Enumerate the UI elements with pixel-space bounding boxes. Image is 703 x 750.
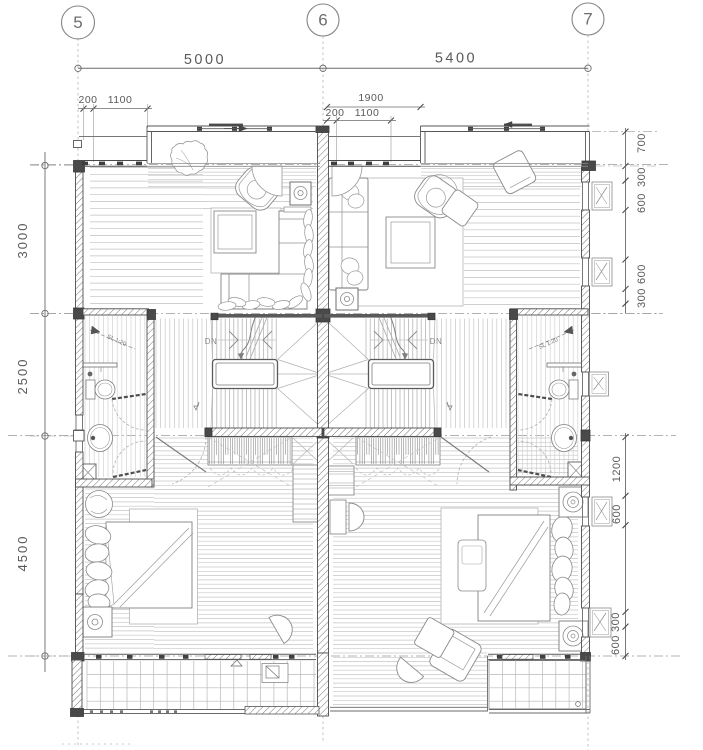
svg-text:300: 300 bbox=[636, 288, 648, 308]
svg-text:DN: DN bbox=[205, 337, 218, 346]
svg-text:1200: 1200 bbox=[611, 456, 623, 482]
svg-text:600: 600 bbox=[611, 504, 623, 524]
svg-text:7: 7 bbox=[583, 10, 592, 29]
svg-text:6: 6 bbox=[318, 11, 327, 30]
svg-text:300: 300 bbox=[610, 612, 622, 632]
svg-text:700: 700 bbox=[636, 133, 648, 153]
svg-text:600: 600 bbox=[636, 264, 648, 284]
svg-text:5400: 5400 bbox=[435, 51, 477, 67]
svg-text:5000: 5000 bbox=[184, 52, 226, 68]
svg-text:3000: 3000 bbox=[15, 222, 30, 259]
svg-text:1100: 1100 bbox=[355, 107, 380, 119]
svg-text:DN: DN bbox=[430, 337, 443, 346]
svg-text:4500: 4500 bbox=[15, 535, 30, 572]
svg-text:5: 5 bbox=[73, 13, 82, 32]
svg-text:1100: 1100 bbox=[108, 94, 133, 106]
svg-text:1900: 1900 bbox=[358, 92, 383, 104]
svg-text:200: 200 bbox=[78, 94, 97, 106]
svg-text:2500: 2500 bbox=[15, 358, 30, 395]
svg-text:200: 200 bbox=[325, 107, 344, 119]
svg-text:600: 600 bbox=[636, 193, 648, 213]
svg-text:600: 600 bbox=[610, 635, 622, 655]
svg-text:300: 300 bbox=[636, 167, 648, 187]
